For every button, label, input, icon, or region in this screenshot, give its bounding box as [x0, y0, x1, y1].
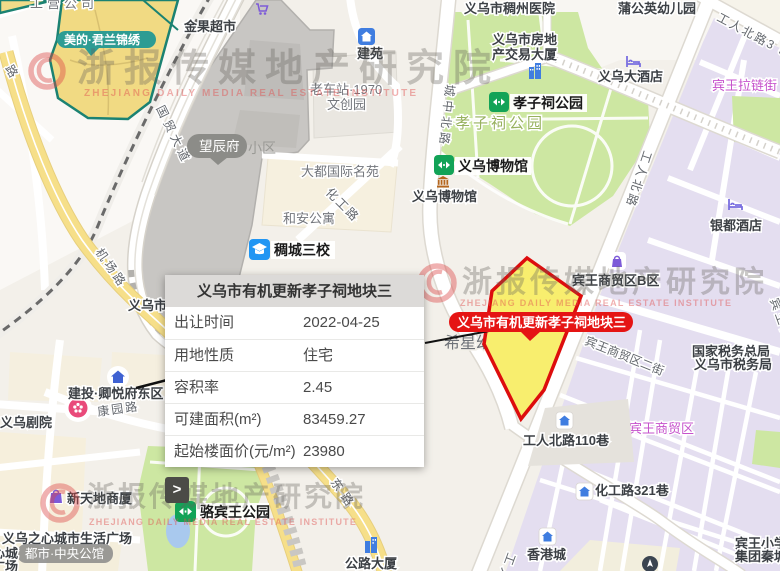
- svg-text:义乌大酒店: 义乌大酒店: [598, 69, 663, 84]
- svg-text:香港城: 香港城: [526, 547, 566, 562]
- svg-text:集团秦塘: 集团秦塘: [734, 549, 780, 564]
- svg-text:工营公司: 工营公司: [30, 0, 98, 11]
- svg-text:孝子祠公园: 孝子祠公园: [512, 95, 583, 111]
- svg-text:公路大厦: 公路大厦: [345, 556, 398, 571]
- svg-text:义乌市: 义乌市: [128, 298, 167, 313]
- svg-text:工人北路110巷: 工人北路110巷: [523, 433, 610, 448]
- svg-text:稠城三校: 稠城三校: [274, 242, 331, 258]
- svg-text:小区: 小区: [248, 140, 276, 156]
- svg-text:浙报传媒地产研究院: 浙报传媒地产研究院: [87, 480, 366, 512]
- svg-text:和安公寓: 和安公寓: [283, 211, 335, 226]
- svg-text:蒲公英幼儿园: 蒲公英幼儿园: [618, 1, 696, 16]
- svg-text:浙报传媒地产研究院: 浙报传媒地产研究院: [462, 265, 768, 299]
- svg-text:美的·君兰锦绣: 美的·君兰锦绣: [64, 32, 141, 47]
- svg-text:文创园: 文创园: [327, 97, 366, 112]
- svg-text:孝子祠公园: 孝子祠公园: [455, 115, 545, 132]
- svg-text:义乌博物馆: 义乌博物馆: [458, 158, 528, 174]
- svg-text:产交易大厦: 产交易大厦: [492, 47, 558, 62]
- svg-text:浙报传媒地产研究院: 浙报传媒地产研究院: [77, 48, 500, 90]
- svg-text:都市·中央公馆: 都市·中央公馆: [25, 546, 104, 561]
- svg-text:建投·卿悦府东区: 建投·卿悦府东区: [68, 386, 163, 401]
- svg-text:ZHEJIANG DAILY MEDIA REAL ESTA: ZHEJIANG DAILY MEDIA REAL ESTATE INSTITU…: [89, 517, 357, 527]
- svg-text:宾王商贸区: 宾王商贸区: [629, 421, 694, 436]
- svg-text:ZHEJIANG DAILY MEDIA REAL ESTA: ZHEJIANG DAILY MEDIA REAL ESTATE INSTITU…: [84, 88, 418, 99]
- svg-text:义乌市稠州医院: 义乌市稠州医院: [464, 1, 555, 16]
- svg-text:望辰府: 望辰府: [199, 139, 240, 154]
- svg-text:银都酒店: 银都酒店: [710, 218, 762, 233]
- svg-text:义乌之心城市生活广场: 义乌之心城市生活广场: [2, 531, 132, 546]
- svg-text:宾王拉链街: 宾王拉链街: [712, 78, 777, 93]
- svg-text:化工路321巷: 化工路321巷: [595, 483, 670, 498]
- svg-text:大都国际名苑: 大都国际名苑: [301, 164, 379, 179]
- svg-text:义乌市有机更新孝子祠地块三: 义乌市有机更新孝子祠地块三: [457, 315, 626, 330]
- svg-text:义乌博物馆: 义乌博物馆: [412, 189, 477, 204]
- svg-text:义乌剧院: 义乌剧院: [0, 415, 52, 430]
- svg-text:金果超市: 金果超市: [183, 19, 236, 34]
- svg-text:义乌市税务局: 义乌市税务局: [694, 357, 772, 372]
- svg-text:义乌市房地: 义乌市房地: [492, 32, 557, 47]
- svg-text:ZHEJIANG DAILY MEDIA REAL ESTA: ZHEJIANG DAILY MEDIA REAL ESTATE INSTITU…: [460, 298, 732, 308]
- svg-text:广场: 广场: [0, 559, 18, 571]
